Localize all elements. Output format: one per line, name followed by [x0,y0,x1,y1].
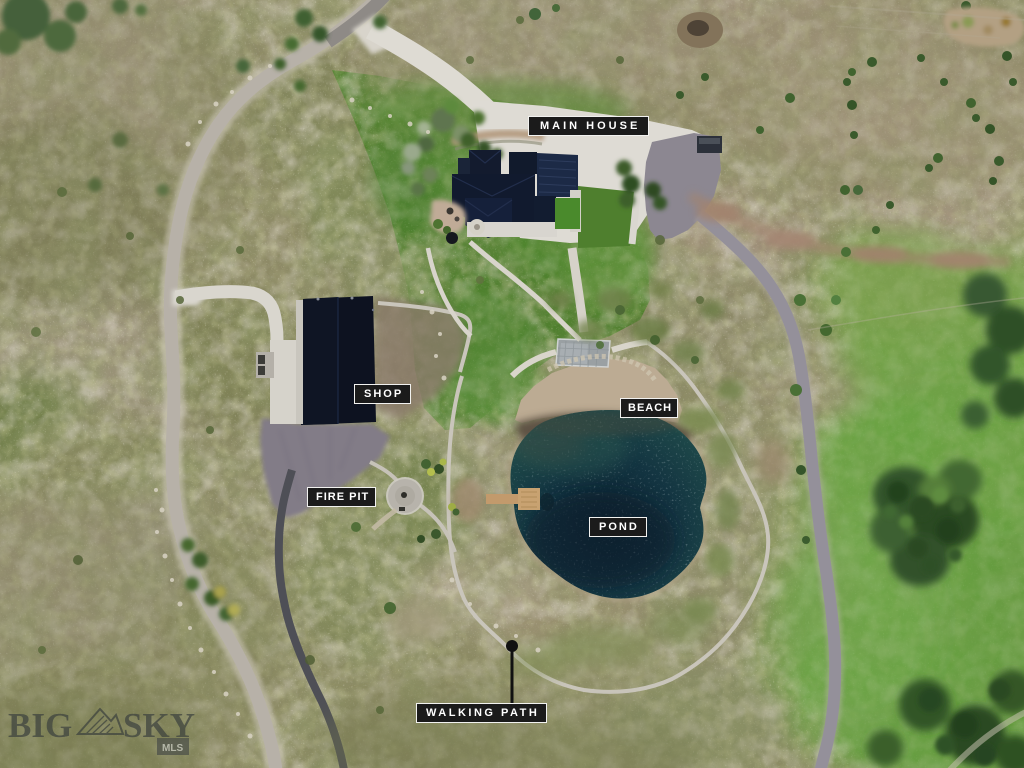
svg-text:MLS: MLS [162,743,183,754]
svg-text:BIG: BIG [8,706,72,745]
